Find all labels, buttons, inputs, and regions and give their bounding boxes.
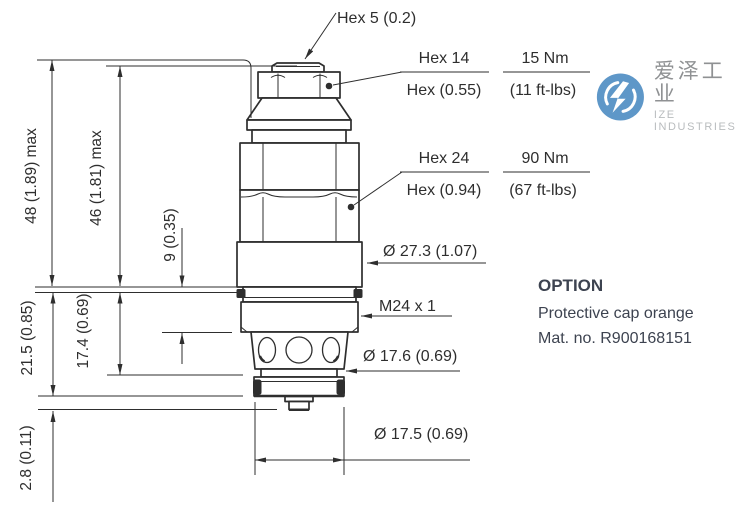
label-dim-48: 48 (1.89) max xyxy=(23,128,40,224)
label-dim-28: 2.8 (0.11) xyxy=(18,425,35,490)
nose-cylinder xyxy=(254,377,344,396)
label-hex24-inch: Hex (0.94) xyxy=(407,182,482,199)
backup-ring-right xyxy=(354,289,363,298)
ize-logo-icon xyxy=(596,69,645,125)
label-dim-9: 9 (0.35) xyxy=(162,208,179,261)
brand-logo: 爱泽工业 IZE INDUSTRIES xyxy=(596,60,749,133)
logo-text-en: IZE INDUSTRIES xyxy=(654,109,749,133)
hex5-leader xyxy=(305,13,336,59)
option-note: OPTION Protective cap orange Mat. no. R9… xyxy=(538,276,694,351)
label-hex24-size: Hex 24 xyxy=(419,150,470,167)
label-hex14-inch: Hex (0.55) xyxy=(407,82,482,99)
label-hex24-torque-ftlbs: (67 ft-lbs) xyxy=(509,182,577,199)
label-dim-215: 21.5 (0.85) xyxy=(19,301,36,376)
label-hex14-torque-nm: 15 Nm xyxy=(521,50,568,67)
thread-section xyxy=(241,302,358,332)
backup-ring-left xyxy=(237,289,246,298)
technical-drawing-page: Hex 5 (0.2) Hex 14 Hex (0.55) 15 Nm (11 … xyxy=(0,0,749,508)
nose-pin xyxy=(289,402,309,410)
hex14-leader-dot xyxy=(326,83,333,90)
label-hex14-size: Hex 14 xyxy=(419,50,470,67)
hex24-leader xyxy=(354,172,402,205)
label-nose-diameter: Ø 17.5 (0.69) xyxy=(374,426,468,443)
hex5-cap xyxy=(272,63,324,72)
logo-names: 爱泽工业 IZE INDUSTRIES xyxy=(654,60,749,133)
hex14-leader xyxy=(333,72,402,85)
oring-right xyxy=(337,380,346,396)
locknut-collar xyxy=(240,143,359,190)
body-cylinder xyxy=(237,242,362,287)
label-dim-46: 46 (1.81) max xyxy=(88,130,105,226)
label-hex5: Hex 5 (0.2) xyxy=(337,10,416,27)
hex24-body xyxy=(240,190,359,242)
label-pilot-diameter: Ø 17.6 (0.69) xyxy=(363,348,457,365)
option-material-no: Mat. no. R900168151 xyxy=(538,326,694,351)
option-title: OPTION xyxy=(538,276,694,296)
valve-body xyxy=(237,63,363,410)
oring-left xyxy=(253,380,262,396)
label-thread: M24 x 1 xyxy=(379,298,436,315)
option-description: Protective cap orange xyxy=(538,301,694,326)
logo-text-cn: 爱泽工业 xyxy=(654,60,749,106)
adjust-cone xyxy=(247,98,351,120)
label-body-diameter: Ø 27.3 (1.07) xyxy=(383,243,477,260)
hex24-leader-dot xyxy=(348,204,355,211)
label-hex14-torque-ftlbs: (11 ft-lbs) xyxy=(510,82,576,99)
label-hex24-torque-nm: 90 Nm xyxy=(521,150,568,167)
label-dim-174: 17.4 (0.69) xyxy=(75,294,92,369)
